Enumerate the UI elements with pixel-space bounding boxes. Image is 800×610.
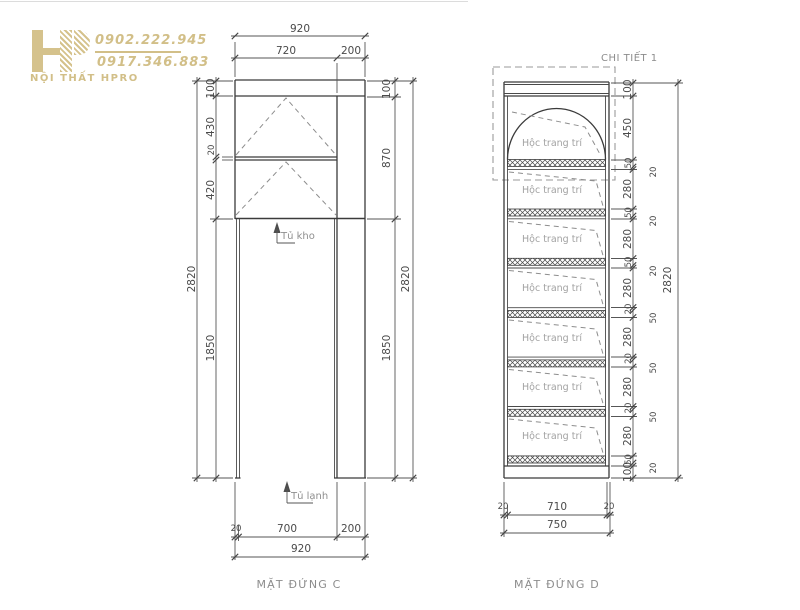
dim-label: 50	[649, 363, 659, 374]
dim-label: 20	[649, 167, 659, 178]
dim-label: 420	[205, 180, 217, 200]
dim-label: 50	[624, 158, 634, 169]
dim-label: 710	[547, 501, 567, 513]
dim-label: 2820	[662, 267, 674, 294]
storage-cabinet-label: Tủ kho	[280, 230, 315, 242]
compartment-label: Hộc trang trí	[522, 382, 582, 393]
dim-label: 280	[622, 229, 634, 249]
dim-label: 20	[498, 502, 509, 512]
dim-label: 2820	[186, 266, 198, 293]
dim-label: 50	[624, 257, 634, 268]
dim-label: 20	[649, 266, 659, 277]
dim-label: 20	[207, 145, 217, 156]
dim-label: 100	[381, 79, 393, 99]
compartment-label: Hộc trang trí	[522, 234, 582, 245]
dim-label: 280	[622, 327, 634, 347]
leader-tu-kho: Tủ kho	[274, 222, 315, 243]
dims-c-right: 100 870 1850 2820	[367, 77, 417, 482]
dim-label: 920	[290, 23, 310, 35]
dim-label: 20	[604, 502, 615, 512]
dim-label: 280	[622, 426, 634, 446]
dim-label: 50	[649, 412, 659, 423]
compartment-labels: Hộc trang trí Hộc trang trí Hộc trang tr…	[522, 138, 582, 442]
dims-d-bottom: 20 710 20 750	[498, 482, 615, 537]
dim-label: 450	[622, 118, 634, 138]
elevation-c-title: MẶT ĐỨNG C	[256, 578, 341, 591]
elevation-d: CHI TIẾT 1	[493, 50, 683, 591]
dim-label: 200	[341, 45, 361, 57]
dim-label: 20	[231, 524, 242, 534]
dims-c-left: 100 430 20 420 1850 2820	[186, 77, 233, 482]
dim-label: 200	[341, 523, 361, 535]
dim-label: 720	[276, 45, 296, 57]
dim-label: 700	[277, 523, 297, 535]
elevation-c: 920 720 200 100 430 20	[186, 23, 417, 591]
compartment-label: Hộc trang trí	[522, 333, 582, 344]
dim-label: 50	[649, 313, 659, 324]
dim-label: 20	[624, 353, 634, 364]
dim-label: 870	[381, 148, 393, 168]
dim-label: 20	[649, 463, 659, 474]
elevation-d-title: MẶT ĐỨNG D	[514, 578, 600, 591]
compartment-label: Hộc trang trí	[522, 283, 582, 294]
compartment-label: Hộc trang trí	[522, 431, 582, 442]
dim-label: 280	[622, 179, 634, 199]
arch-curve	[508, 109, 606, 160]
dim-label: 1850	[205, 335, 217, 362]
drawing-sheet: 0902.222.945 0917.346.883 NỘI THẤT HPRO	[0, 0, 800, 610]
dim-label: 750	[547, 519, 567, 531]
detail-callout-label: CHI TIẾT 1	[601, 50, 658, 64]
dim-label: 100	[622, 79, 634, 99]
compartment-label: Hộc trang trí	[522, 138, 582, 149]
dim-label: 50	[624, 207, 634, 218]
dim-label: 280	[622, 377, 634, 397]
dim-label: 20	[649, 216, 659, 227]
compartment-label: Hộc trang trí	[522, 185, 582, 196]
dims-c-top: 920 720 200	[231, 23, 369, 93]
dim-label: 920	[291, 543, 311, 555]
dim-label: 20	[624, 304, 634, 315]
dim-label: 280	[622, 278, 634, 298]
leader-tu-lanh: Tủ lạnh	[284, 481, 329, 503]
fridge-label: Tủ lạnh	[290, 490, 328, 502]
cabinet-c-outline	[235, 80, 366, 478]
decorative-hatch-bands	[508, 160, 606, 463]
dim-label: 100	[622, 462, 634, 482]
dim-label: 430	[205, 117, 217, 137]
dim-label: 20	[624, 403, 634, 414]
dims-d-right: 100 450 50 20 280 50 20 280 50 20 280 20…	[611, 79, 683, 482]
dim-label: 2820	[400, 266, 412, 293]
dim-label: 100	[205, 78, 217, 98]
dim-label: 1850	[381, 335, 393, 362]
technical-drawing: 920 720 200 100 430 20	[0, 0, 800, 610]
